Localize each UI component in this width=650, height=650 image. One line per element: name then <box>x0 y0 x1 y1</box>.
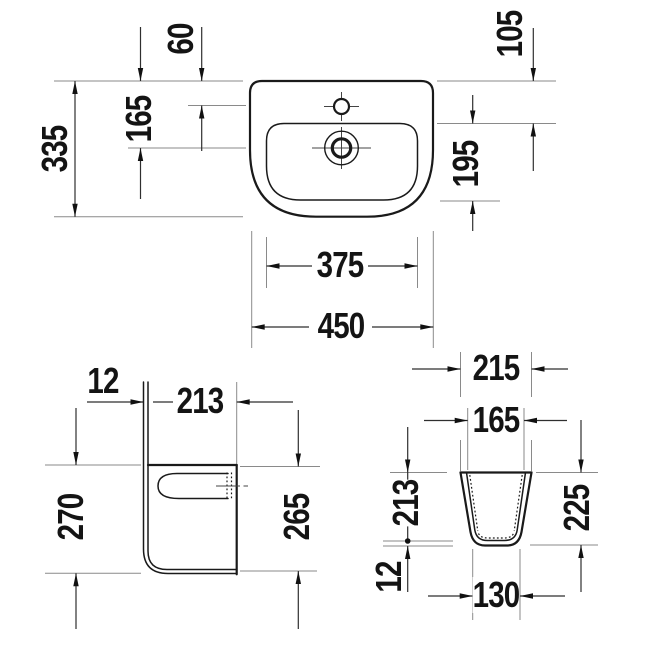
dim-label-rim-to-bowl: 105 <box>492 11 528 58</box>
dim-label-drain-offset: 165 <box>121 96 157 143</box>
arrowheads <box>73 399 301 586</box>
dim-label-front-height: 265 <box>279 494 315 541</box>
chain-dimension-dot <box>405 538 411 544</box>
hidden-wall-lines <box>470 475 522 538</box>
washbasin-top-view <box>54 27 556 348</box>
dim-label-inner-top-width: 165 <box>473 402 520 438</box>
drain <box>312 127 371 169</box>
dim-label-bowl-width: 375 <box>317 247 364 283</box>
pedestal-inner-outline <box>467 473 526 541</box>
dimension-lines <box>76 402 298 629</box>
dim-label-overall-depth: 335 <box>37 126 73 173</box>
dim-label-foot-height: 12 <box>371 561 407 592</box>
dim-label-overall-width: 450 <box>318 308 365 344</box>
dim-label-back-height: 270 <box>53 494 89 541</box>
technical-drawing: 60 165 335 105 195 375 450 12 213 270 26… <box>0 0 650 650</box>
tap-hole <box>324 92 359 121</box>
dim-label-top-width: 215 <box>473 350 520 386</box>
dim-label-wall-gap: 12 <box>87 363 118 399</box>
dim-label-bowl-depth: 195 <box>448 141 484 188</box>
dim-label-tap-offset: 60 <box>163 23 199 54</box>
dim-label-body-height: 213 <box>388 480 424 527</box>
dim-label-pedestal-depth: 213 <box>177 383 224 419</box>
dim-label-overall-height: 225 <box>559 485 595 532</box>
hidden-drain-lines <box>216 473 248 500</box>
dim-label-bottom-width: 130 <box>473 577 520 613</box>
